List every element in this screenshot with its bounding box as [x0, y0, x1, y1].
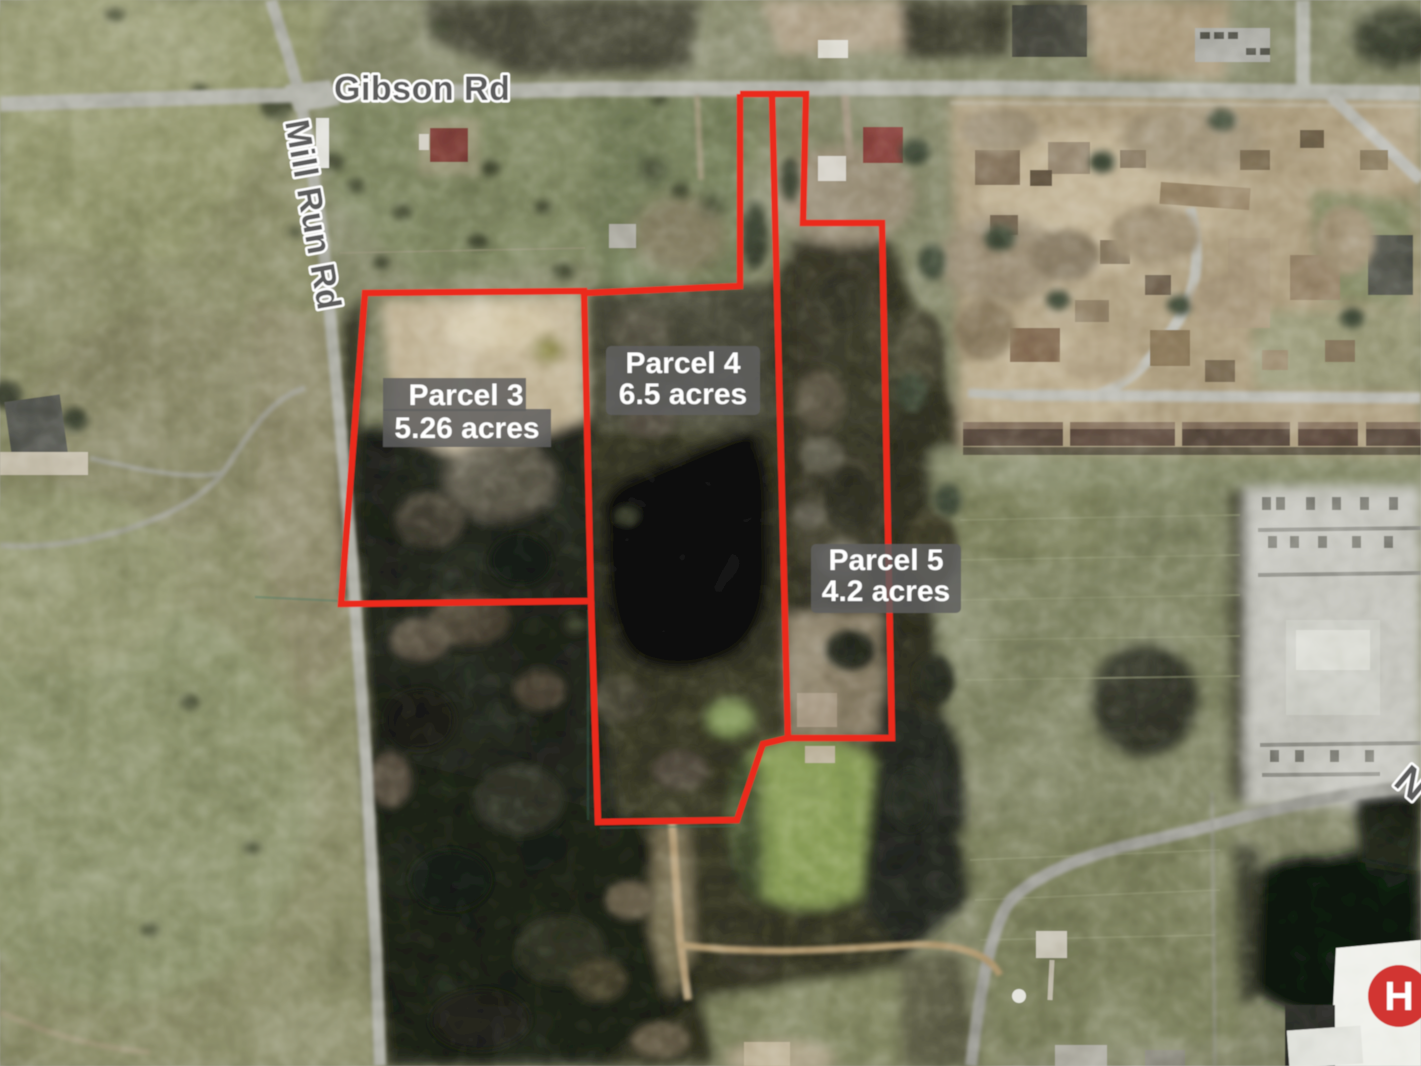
svg-text:Gibson Rd: Gibson Rd [334, 70, 510, 108]
svg-text:6.5 acres: 6.5 acres [619, 378, 747, 411]
svg-text:Parcel 3: Parcel 3 [408, 379, 523, 412]
svg-text:5.26 acres: 5.26 acres [394, 412, 539, 445]
svg-text:4.2 acres: 4.2 acres [822, 575, 950, 608]
svg-text:Parcel 4: Parcel 4 [625, 347, 740, 380]
svg-text:Parcel 5: Parcel 5 [828, 544, 943, 577]
svg-text:H: H [1384, 973, 1414, 1019]
